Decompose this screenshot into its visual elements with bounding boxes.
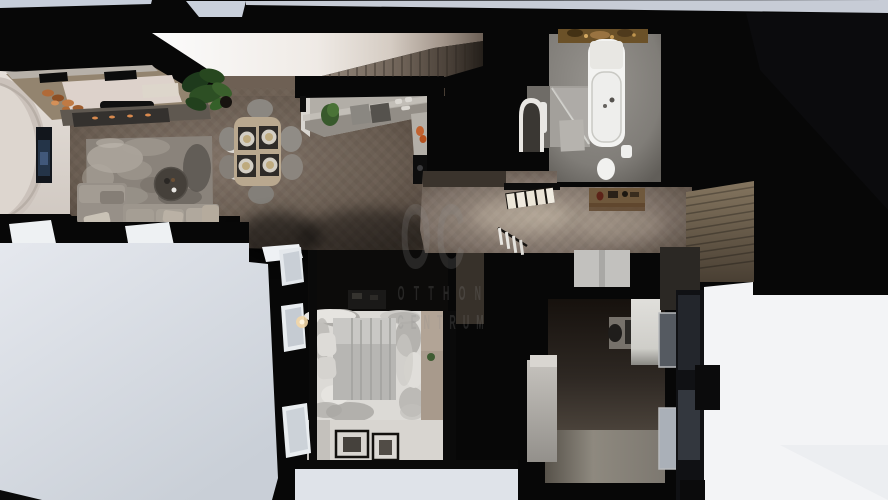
svg-text:OTTHON: OTTHON [398, 283, 491, 305]
svg-text:OC: OC [400, 186, 470, 288]
svg-text:CENTRUM: CENTRUM [397, 312, 490, 334]
